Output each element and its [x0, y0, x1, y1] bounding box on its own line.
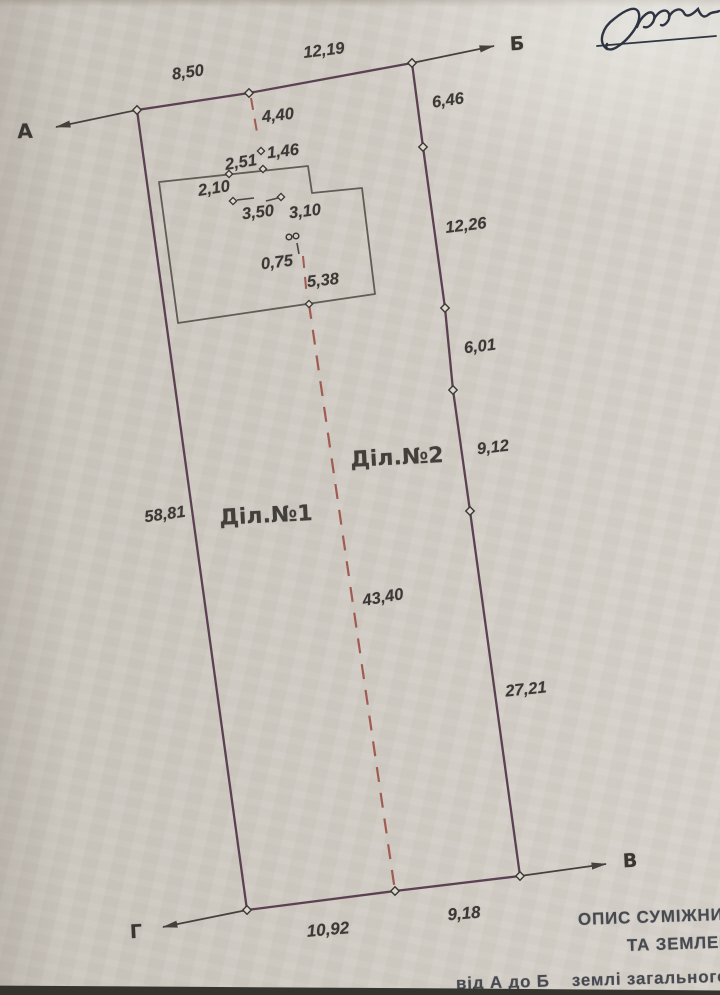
corner-label-v: В [622, 850, 638, 873]
arrow-to-v [520, 864, 606, 876]
plan-drawing [0, 0, 720, 995]
direction-arrows [56, 46, 606, 927]
dim-bottom-seg2: 9,18 [447, 903, 482, 926]
dim-right-seg4: 9,12 [476, 437, 510, 460]
small-circle-markers [286, 233, 299, 240]
corner-label-a: А [17, 119, 33, 144]
dim-house-inner2: 3,10 [288, 201, 322, 224]
dim-house-inner3: 0,75 [260, 252, 294, 275]
arrow-to-b [412, 46, 494, 63]
building-outline [159, 166, 375, 323]
dim-house-gap: 1,46 [266, 141, 300, 164]
dim-bottom-seg1: 10,92 [306, 918, 350, 942]
arrow-to-a [56, 110, 137, 127]
parcel-1-label: Діл.№1 [219, 501, 314, 531]
dim-house-inner4: 5,38 [306, 270, 340, 292]
scanned-land-survey-plan: А Б В Г 8,50 12,19 6,46 12,26 6,01 9,12 … [0, 0, 720, 995]
corner-label-g: Г [129, 921, 142, 944]
plot-boundary [137, 63, 520, 910]
arrow-to-g [163, 910, 247, 927]
parcel-2-label: Діл.№2 [350, 443, 445, 473]
signature-scribble [597, 9, 719, 50]
footer-description-line2: ТА ЗЕМЛЕК [627, 932, 720, 956]
dim-house-inner1: 3,50 [241, 202, 275, 225]
dim-house-offset: 4,40 [261, 105, 295, 128]
dim-right-seg3: 6,01 [463, 336, 497, 359]
corner-label-b: Б [509, 33, 525, 56]
